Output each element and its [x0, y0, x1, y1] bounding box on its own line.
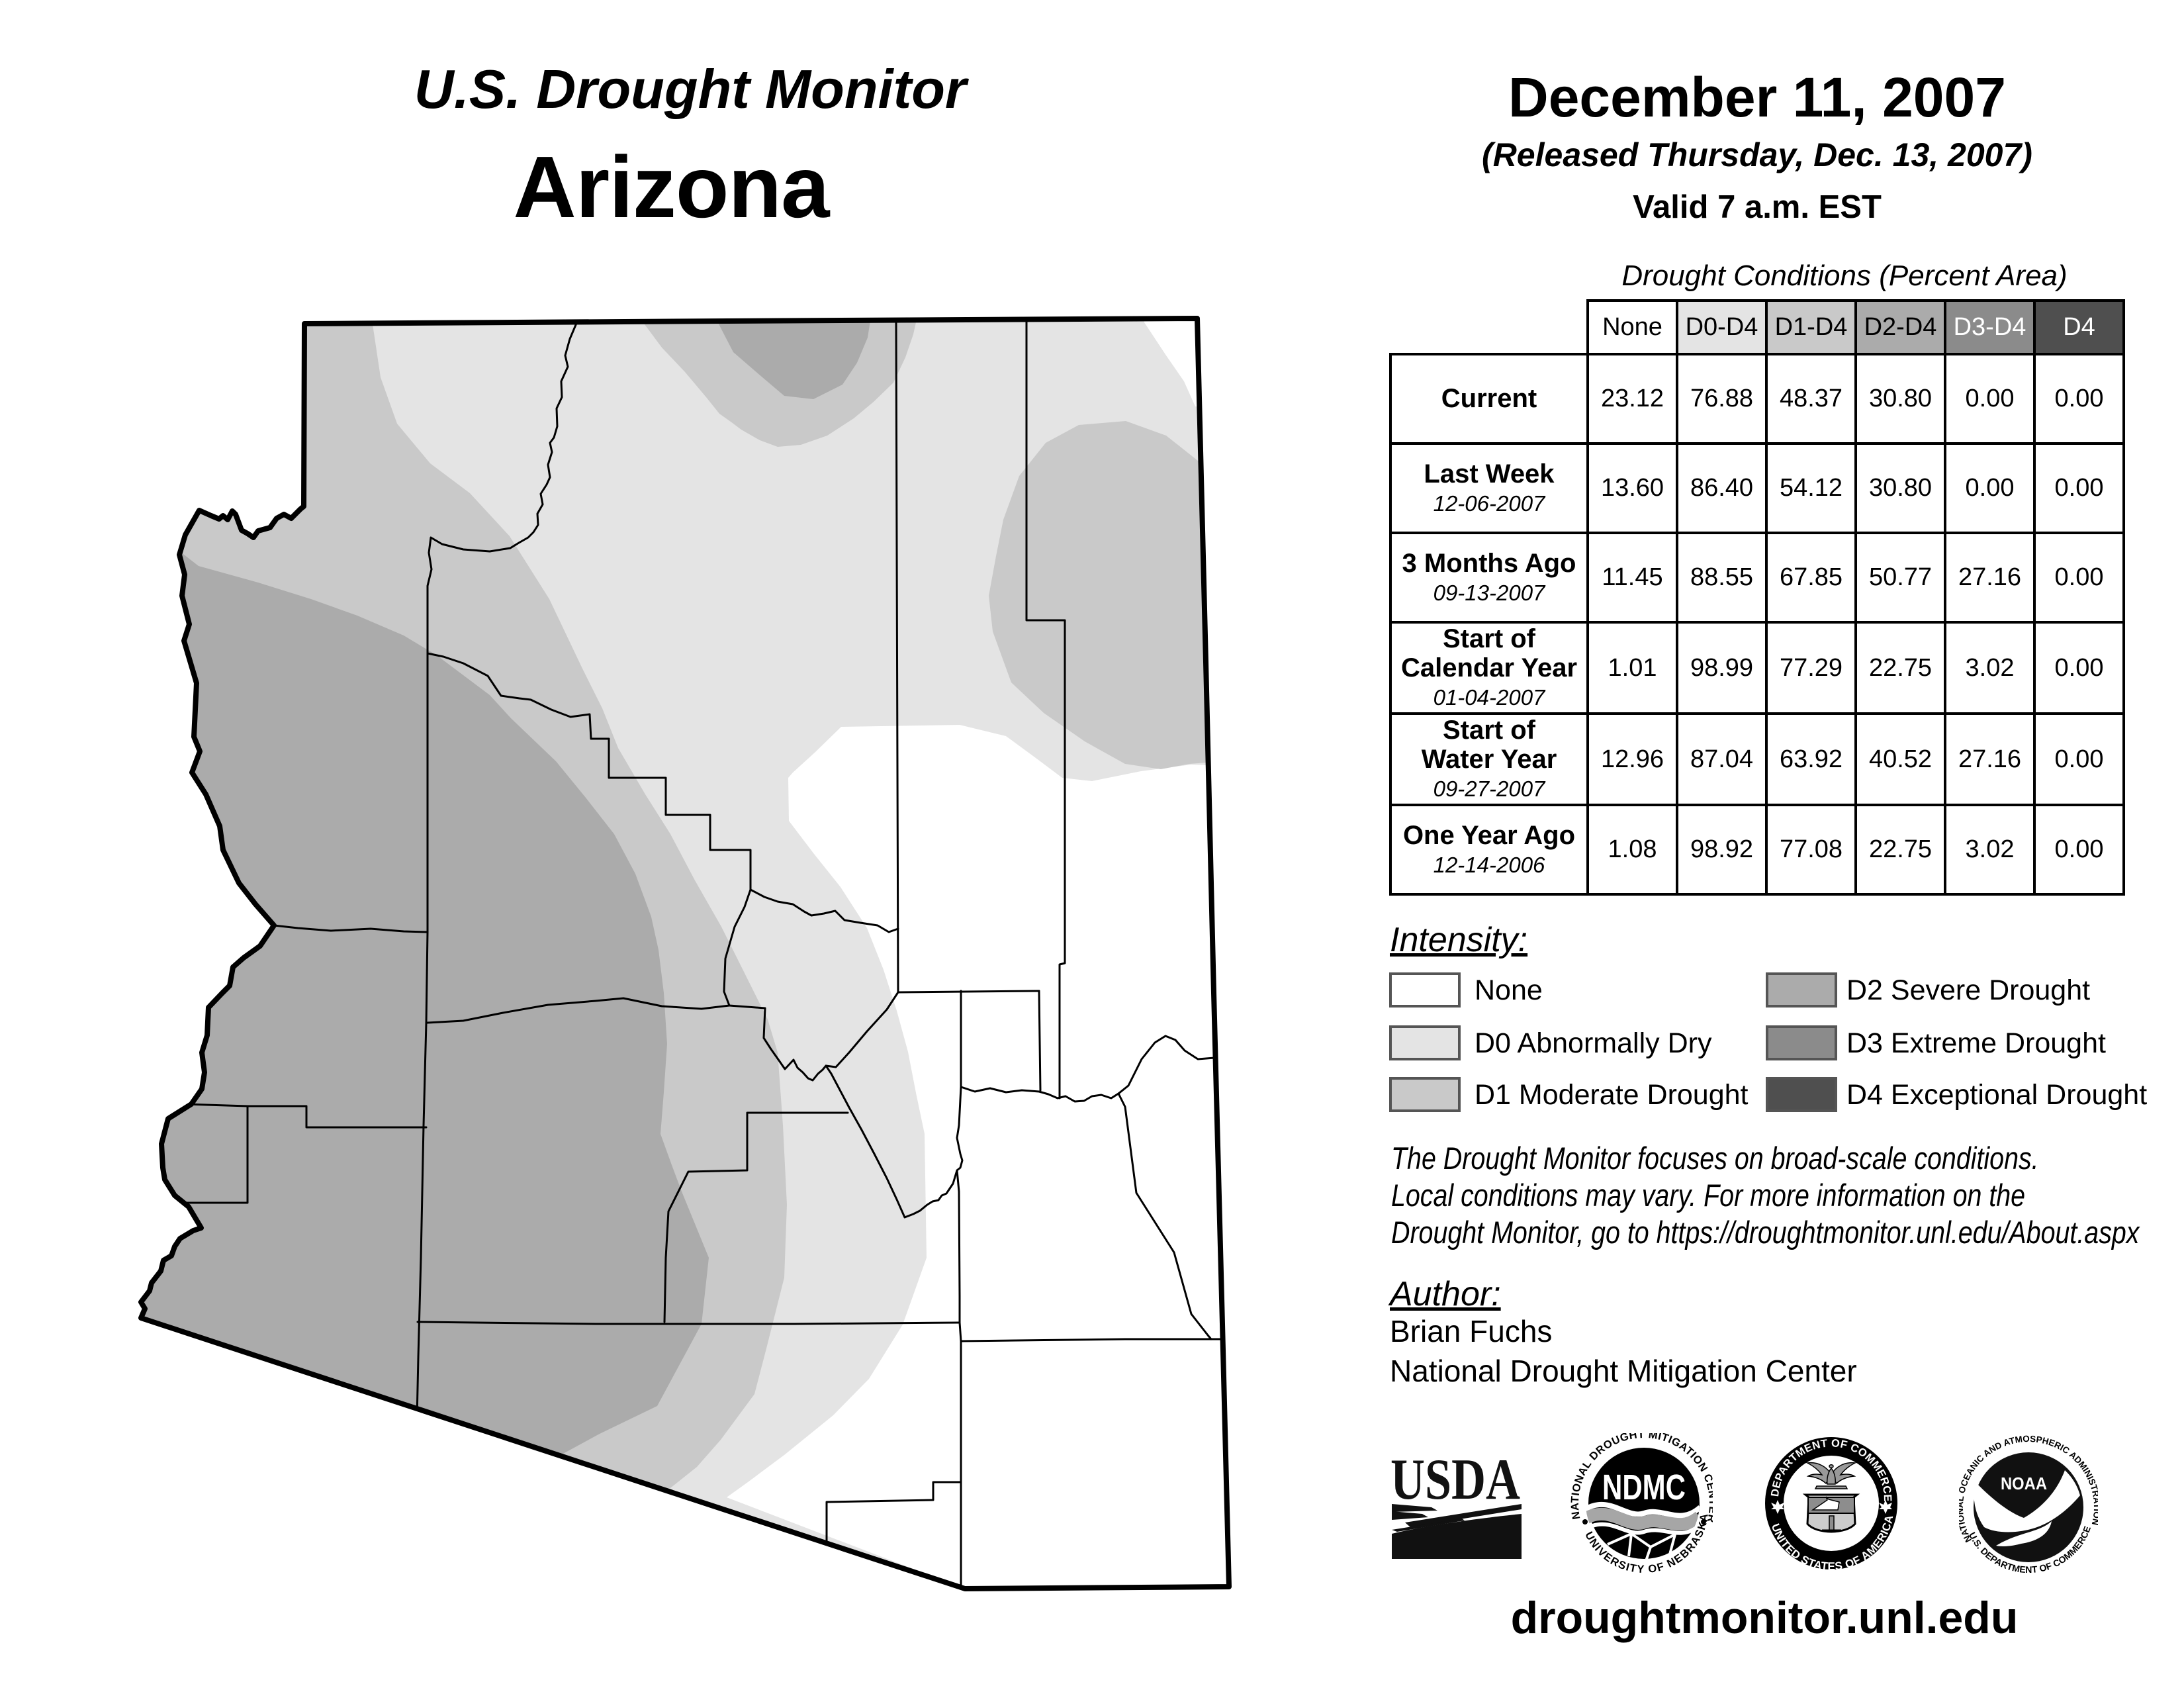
svg-text:NDMC: NDMC	[1602, 1468, 1686, 1507]
svg-text:USDA: USDA	[1390, 1458, 1520, 1512]
svg-text:NOAA: NOAA	[2001, 1474, 2047, 1493]
